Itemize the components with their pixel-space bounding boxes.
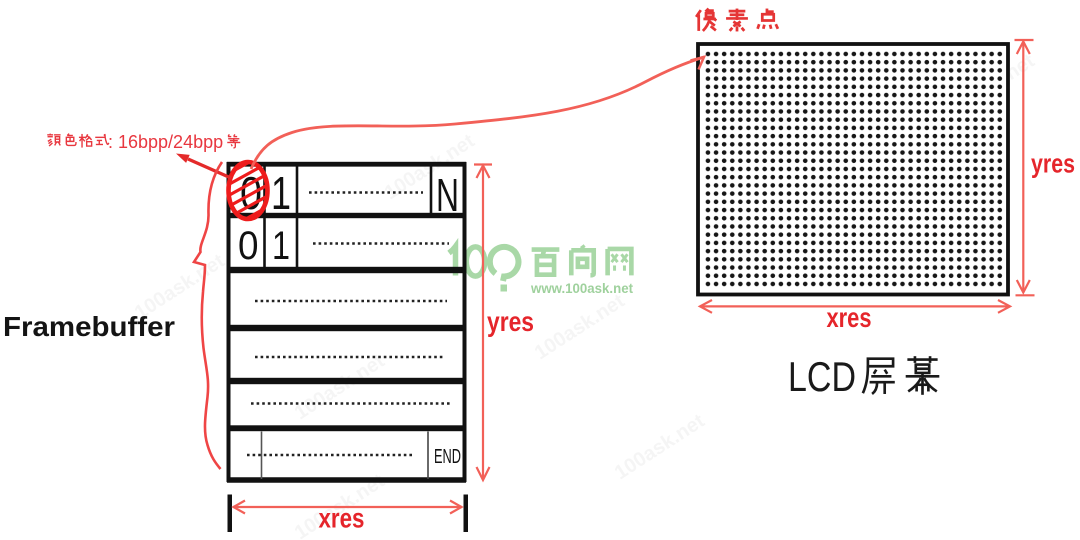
svg-text:yres: yres [487, 306, 534, 337]
svg-text:1: 1 [272, 224, 290, 268]
svg-text:END: END [434, 446, 461, 468]
svg-text:0: 0 [238, 224, 259, 268]
svg-text:xres: xres [827, 302, 872, 333]
svg-text:N: N [436, 169, 459, 221]
svg-text:Framebuffer: Framebuffer [3, 311, 175, 342]
svg-text:yres: yres [1031, 149, 1075, 179]
svg-text:1: 1 [271, 167, 291, 219]
svg-text:LCD: LCD [788, 353, 856, 400]
svg-text:: 16bpp/24bpp: : 16bpp/24bpp [108, 132, 223, 152]
svg-text:www.100ask.net: www.100ask.net [530, 281, 633, 296]
svg-text:xres: xres [319, 503, 365, 534]
